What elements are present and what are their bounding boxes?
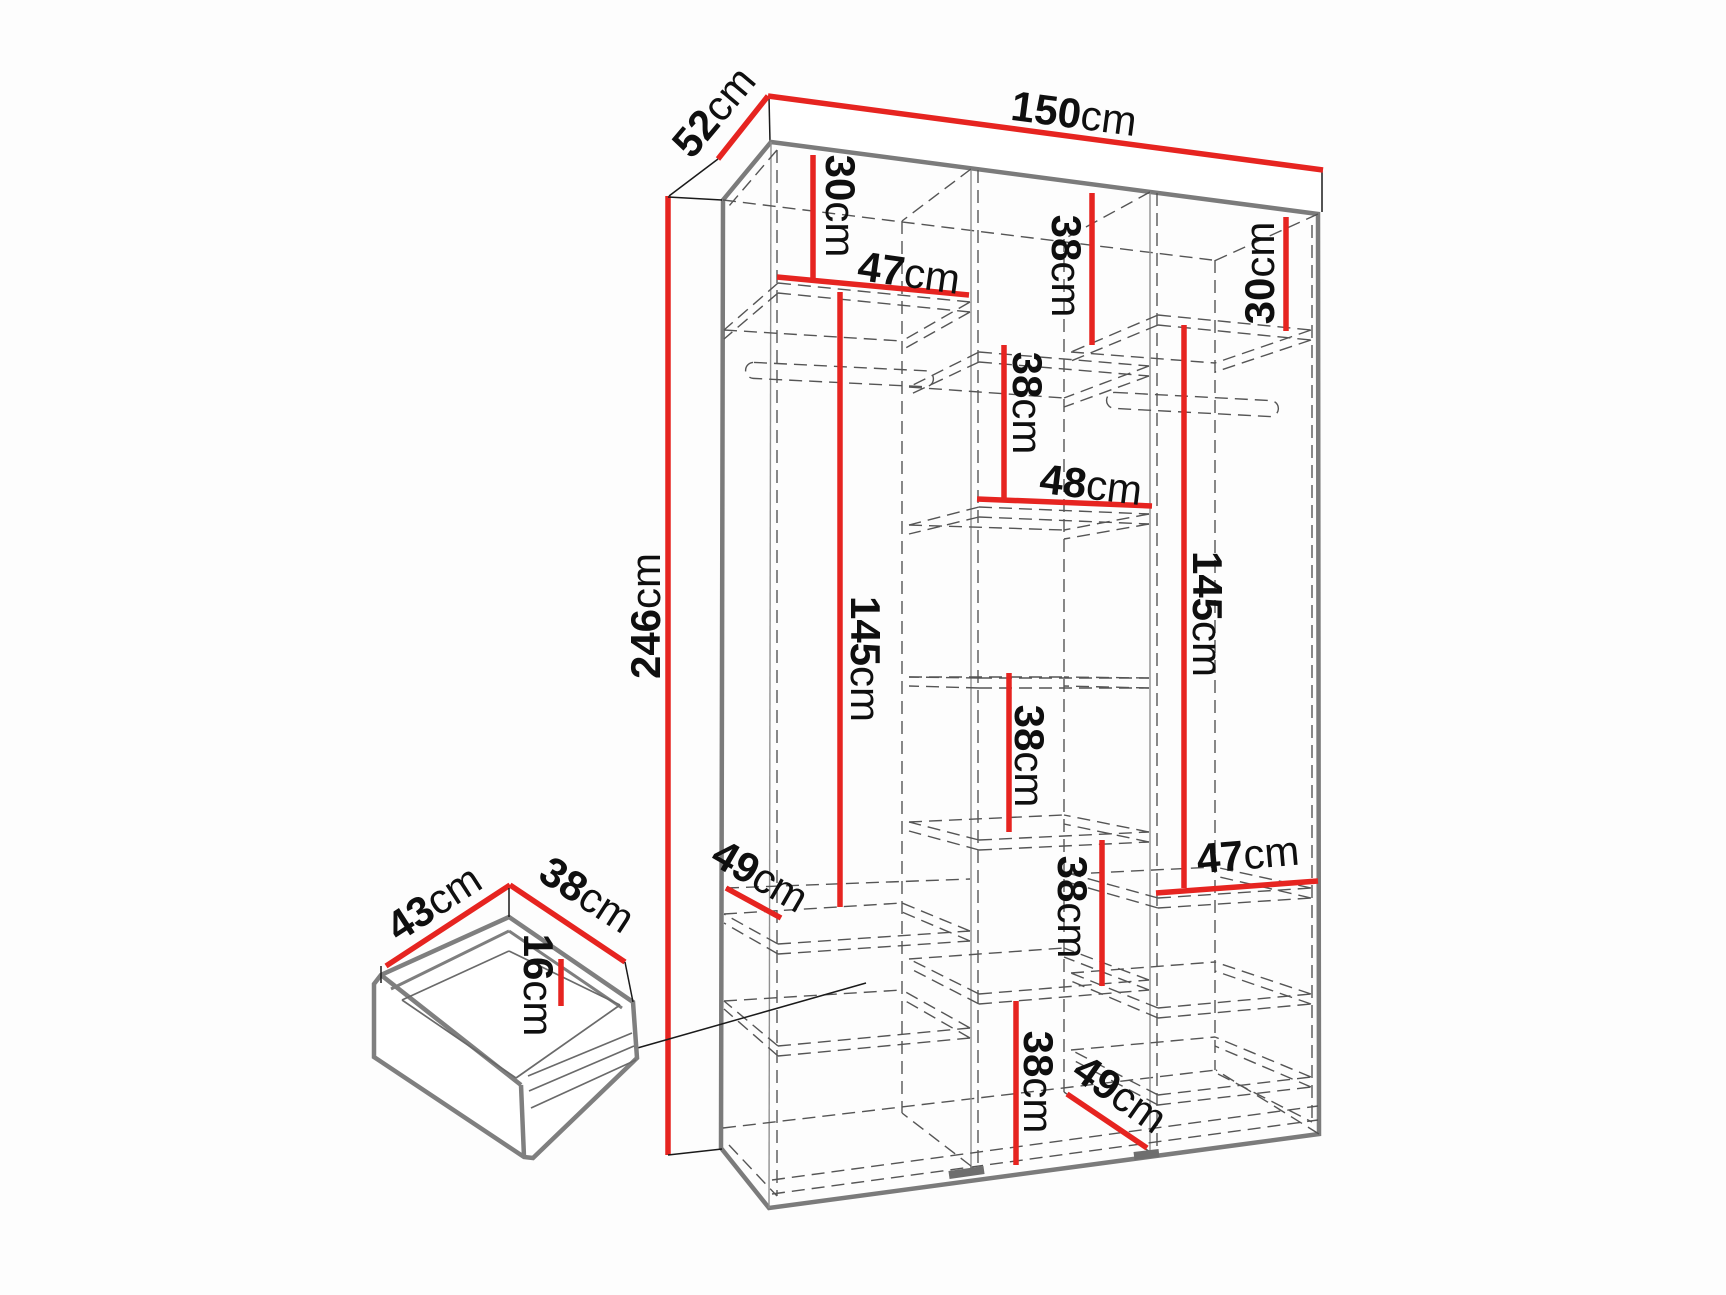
svg-text:38cm: 38cm (1049, 856, 1096, 959)
svg-text:47cm: 47cm (1195, 827, 1301, 883)
svg-text:30cm: 30cm (817, 155, 864, 258)
svg-text:16cm: 16cm (515, 934, 562, 1037)
svg-text:38cm: 38cm (1015, 1031, 1062, 1134)
svg-text:145cm: 145cm (842, 596, 889, 722)
svg-text:38cm: 38cm (1004, 352, 1051, 455)
svg-text:246cm: 246cm (622, 553, 669, 679)
svg-text:38cm: 38cm (1006, 705, 1053, 808)
svg-text:145cm: 145cm (1184, 551, 1231, 677)
svg-text:30cm: 30cm (1236, 222, 1283, 325)
svg-text:38cm: 38cm (1043, 215, 1090, 318)
